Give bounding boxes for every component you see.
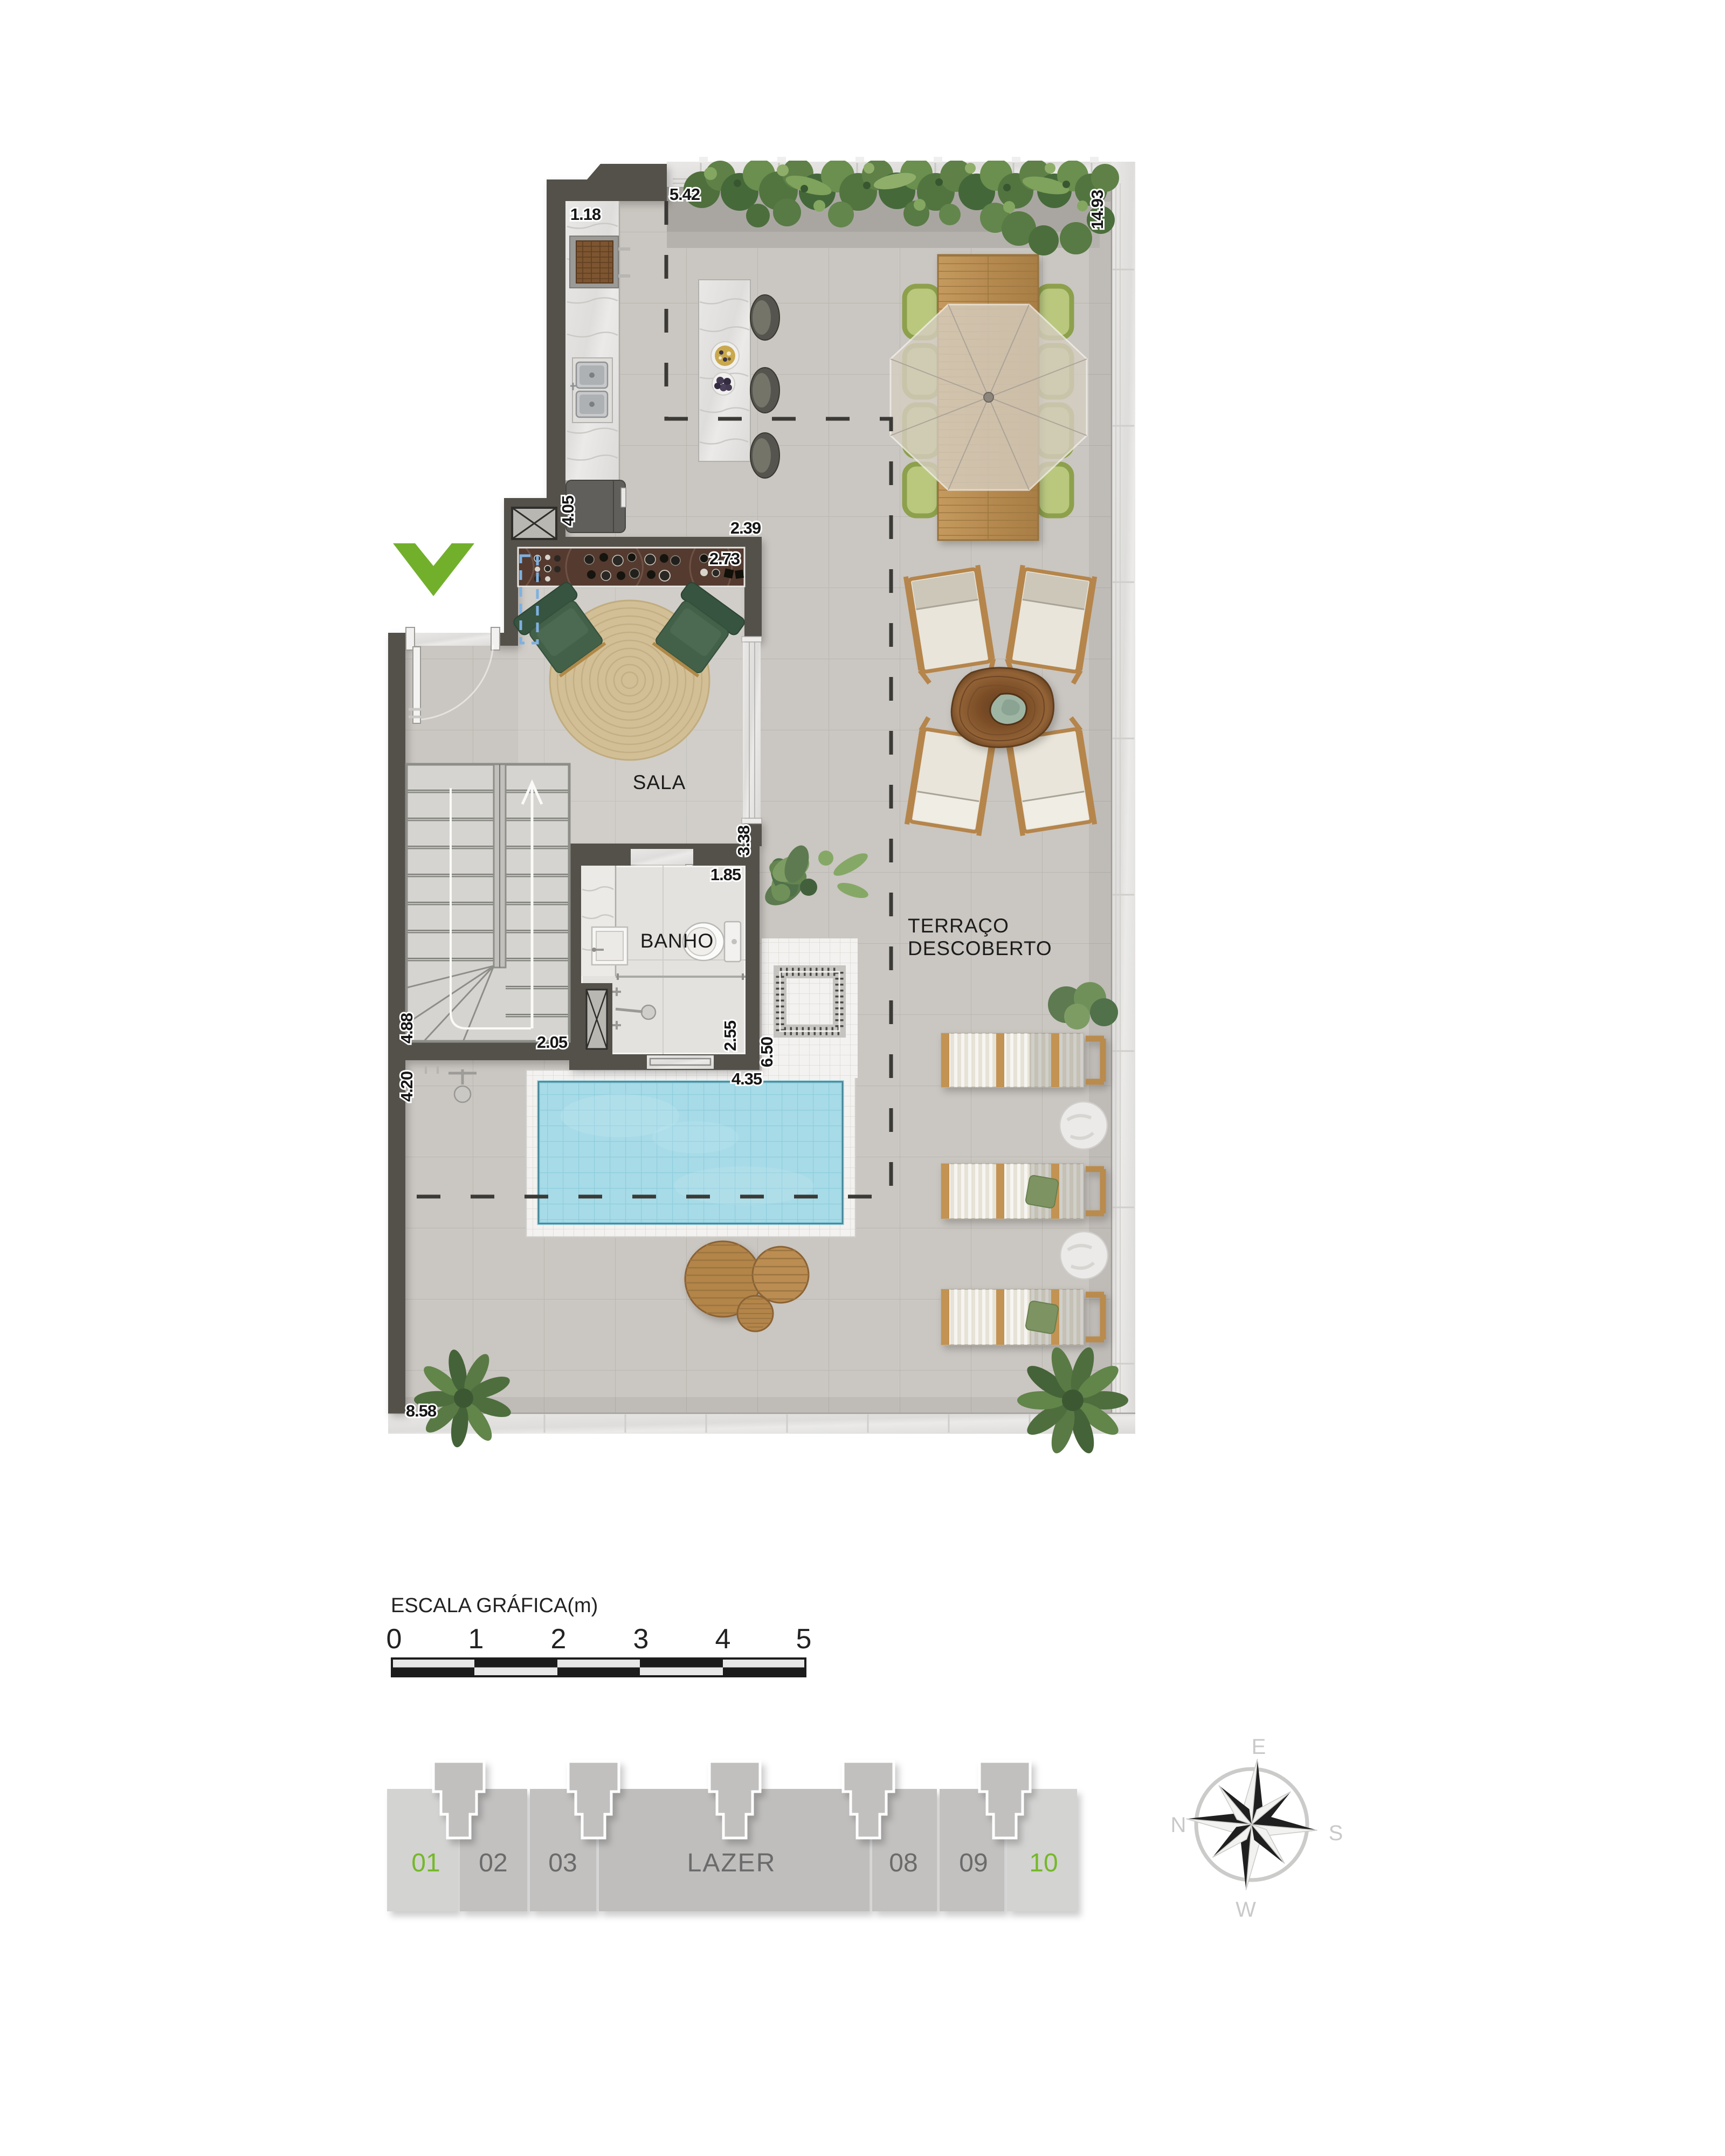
svg-text:1.18: 1.18 bbox=[570, 205, 601, 224]
svg-text:5: 5 bbox=[796, 1623, 812, 1655]
svg-text:3: 3 bbox=[633, 1623, 649, 1655]
svg-text:TERRAÇO: TERRAÇO bbox=[908, 915, 1009, 937]
svg-text:02: 02 bbox=[479, 1849, 507, 1877]
svg-text:ESCALA GRÁFICA(m): ESCALA GRÁFICA(m) bbox=[391, 1594, 598, 1617]
svg-text:10: 10 bbox=[1029, 1849, 1058, 1877]
svg-text:N: N bbox=[1171, 1813, 1186, 1837]
svg-text:08: 08 bbox=[889, 1849, 917, 1877]
svg-text:4.88: 4.88 bbox=[397, 1013, 416, 1044]
svg-text:W: W bbox=[1236, 1898, 1256, 1922]
svg-text:03: 03 bbox=[548, 1849, 577, 1877]
svg-text:5.42: 5.42 bbox=[670, 185, 700, 204]
svg-text:3.38: 3.38 bbox=[734, 825, 753, 856]
svg-text:2.55: 2.55 bbox=[721, 1020, 740, 1051]
svg-text:DESCOBERTO: DESCOBERTO bbox=[908, 937, 1052, 959]
svg-text:1: 1 bbox=[468, 1623, 484, 1655]
svg-text:01: 01 bbox=[411, 1849, 440, 1877]
svg-text:E: E bbox=[1252, 1735, 1266, 1759]
svg-text:2.73: 2.73 bbox=[709, 549, 740, 568]
svg-text:0: 0 bbox=[387, 1623, 402, 1655]
svg-text:4.20: 4.20 bbox=[397, 1072, 416, 1102]
svg-text:4: 4 bbox=[715, 1623, 731, 1655]
svg-text:2.39: 2.39 bbox=[730, 519, 761, 537]
svg-text:BANHO: BANHO bbox=[640, 930, 714, 952]
svg-text:4.35: 4.35 bbox=[732, 1069, 762, 1088]
svg-text:SALA: SALA bbox=[633, 771, 686, 793]
svg-text:8.58: 8.58 bbox=[406, 1401, 437, 1420]
svg-text:2: 2 bbox=[551, 1623, 567, 1655]
svg-text:09: 09 bbox=[959, 1849, 988, 1877]
svg-text:S: S bbox=[1329, 1821, 1343, 1845]
svg-text:4.05: 4.05 bbox=[558, 495, 577, 526]
svg-text:1.85: 1.85 bbox=[710, 865, 741, 884]
svg-text:LAZER: LAZER bbox=[687, 1849, 776, 1877]
svg-text:14.93: 14.93 bbox=[1088, 190, 1107, 229]
svg-text:2.05: 2.05 bbox=[537, 1033, 568, 1052]
svg-text:6.50: 6.50 bbox=[757, 1037, 776, 1067]
